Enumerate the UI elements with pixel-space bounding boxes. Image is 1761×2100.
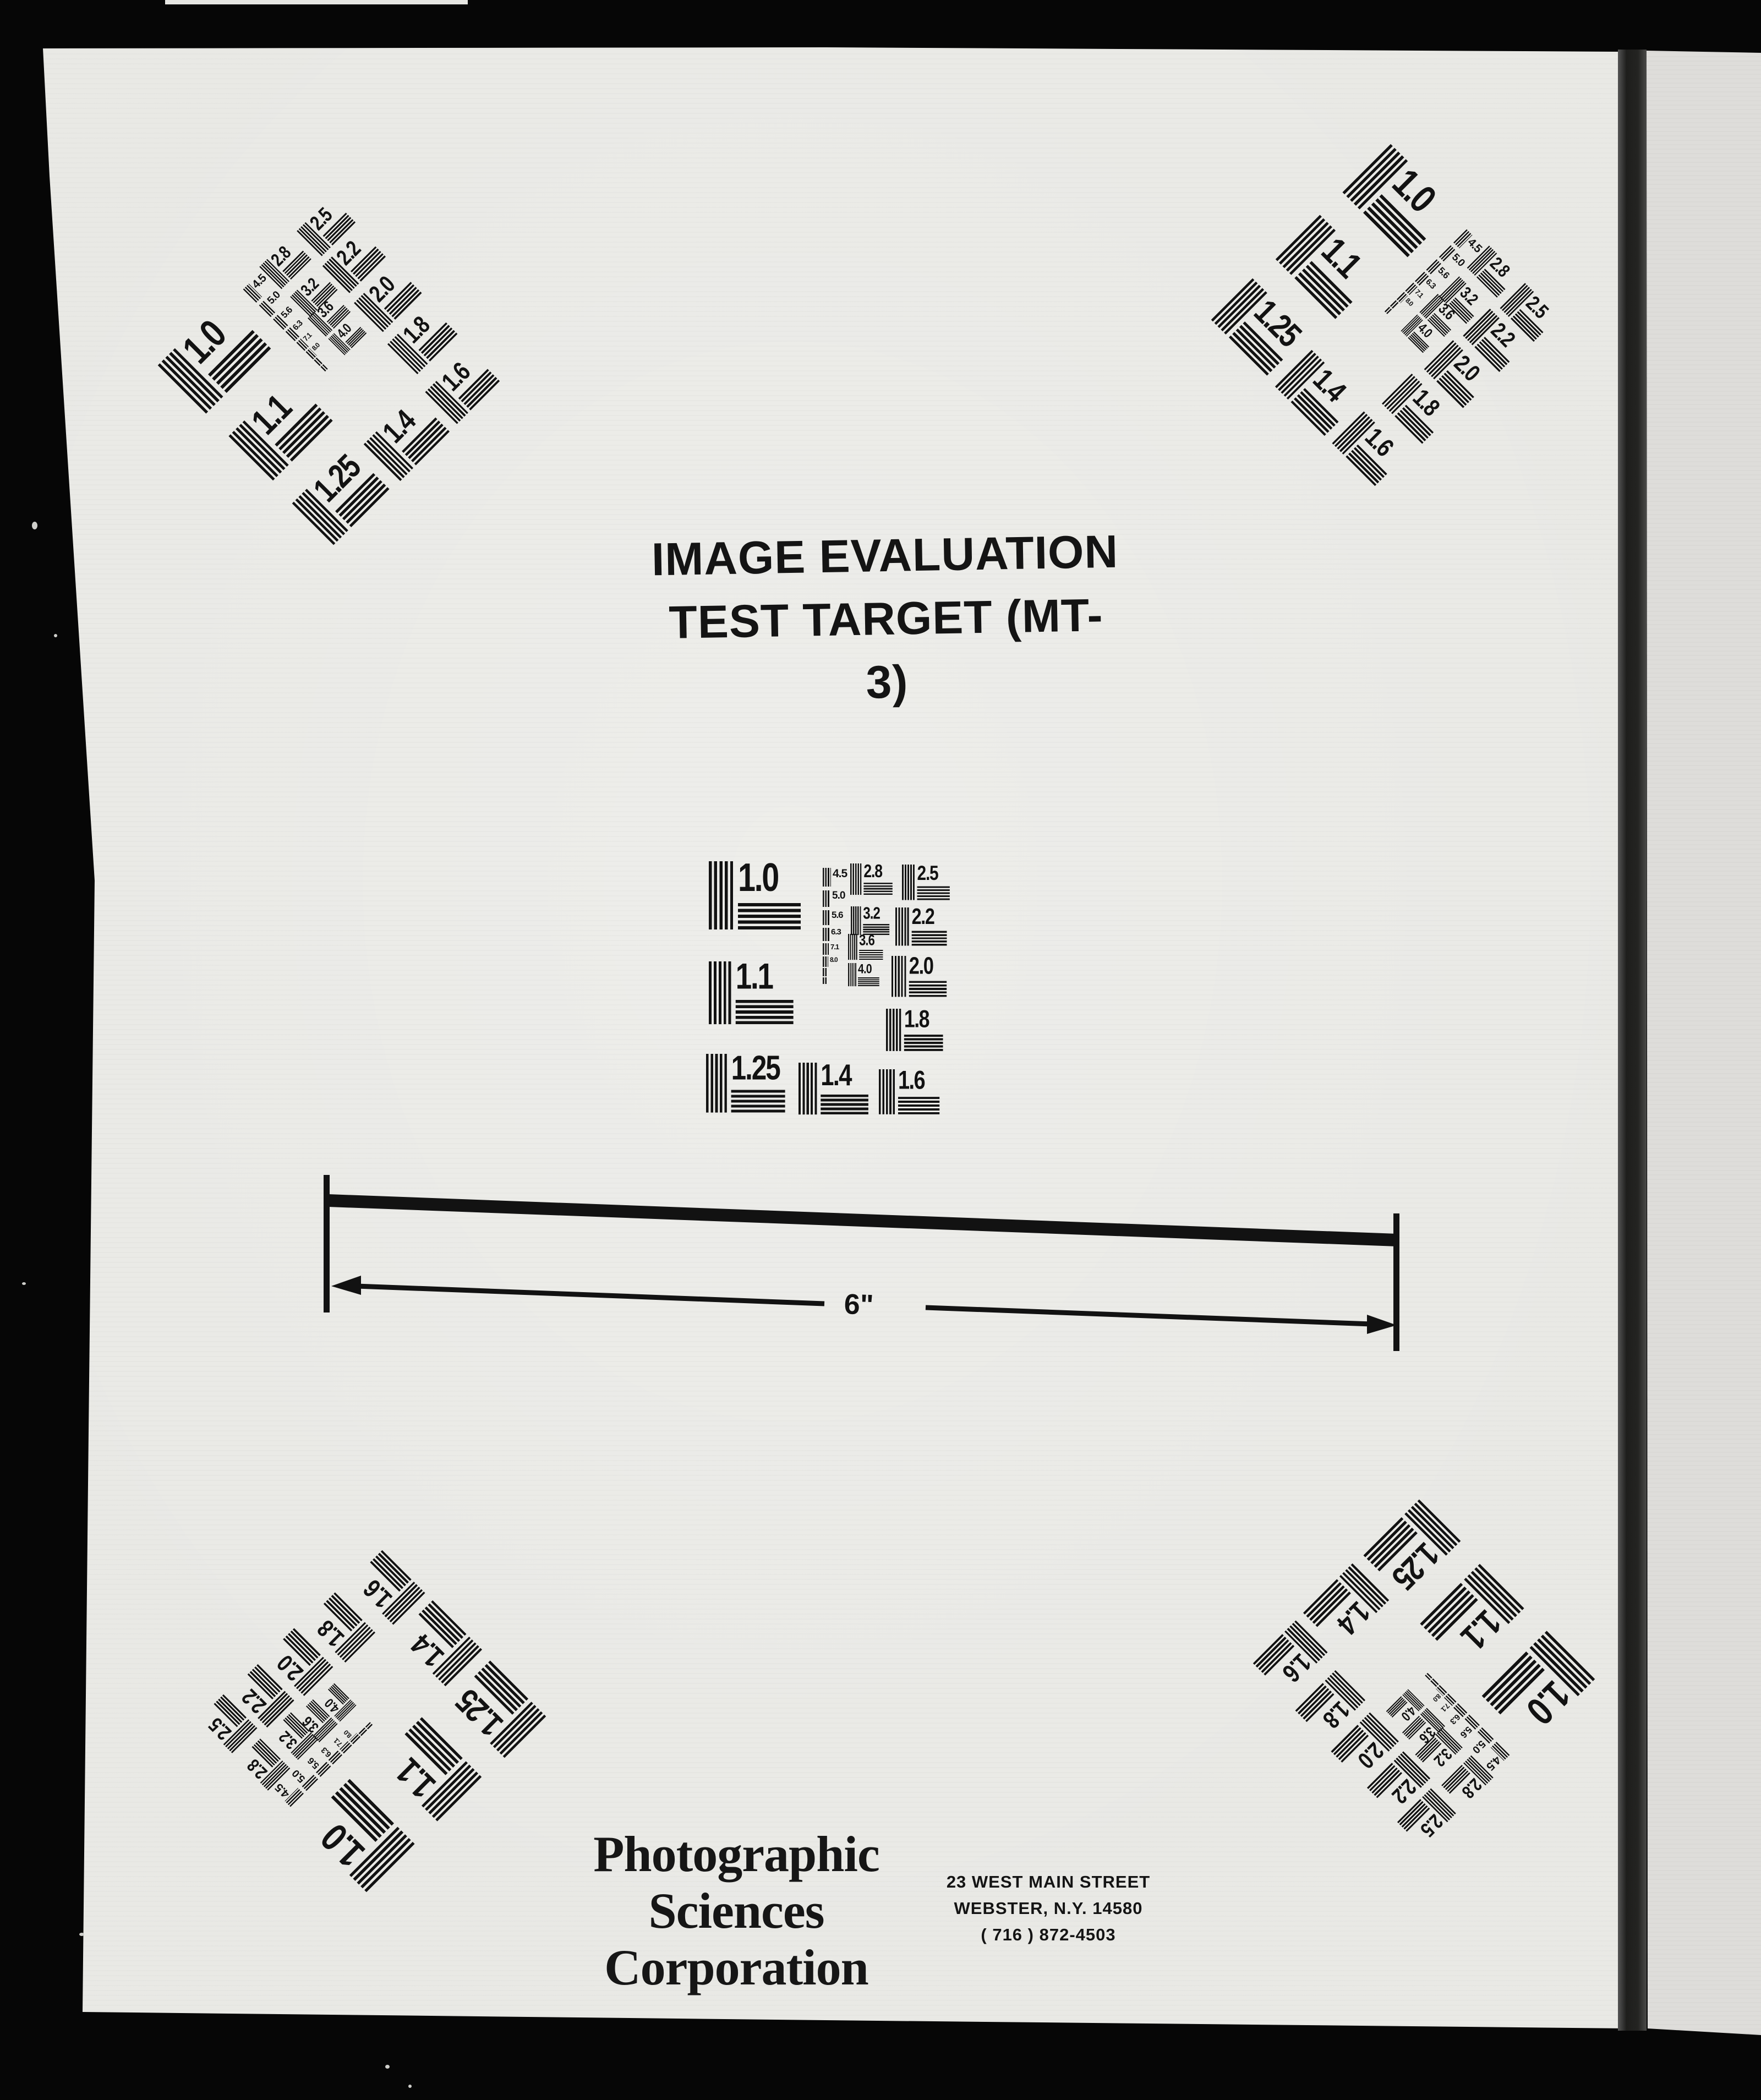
patch-right-column: 1.1 bbox=[736, 961, 794, 1024]
vertical-bars bbox=[709, 861, 733, 929]
resolution-patch-1.6: 1.6 bbox=[879, 1069, 939, 1114]
fine-resolution-item bbox=[823, 968, 847, 976]
patch-right-column: 2.0 bbox=[909, 956, 947, 997]
fine-label: 7.1 bbox=[302, 331, 313, 342]
horizontal-bars bbox=[859, 950, 883, 960]
patch-right-column: 2.8 bbox=[863, 863, 892, 895]
horizontal-bars bbox=[858, 977, 879, 986]
fine-label: 8.0 bbox=[830, 956, 838, 963]
scan-edge-sliver bbox=[165, 0, 468, 4]
org-line-1: Photographic bbox=[566, 1826, 907, 1883]
patch-label: 2.8 bbox=[863, 863, 887, 879]
address-line-2: WEBSTER, N.Y. 14580 bbox=[933, 1895, 1164, 1922]
resolution-patch-1.8: 1.8 bbox=[886, 1009, 943, 1051]
fine-bars bbox=[823, 977, 827, 984]
fine-resolution-item: 4.5 bbox=[823, 868, 847, 887]
dust-speckle bbox=[385, 2065, 390, 2069]
scanned-microfilm-frame: IMAGE EVALUATION TEST TARGET (MT-3) 1.01… bbox=[0, 0, 1761, 2100]
vertical-bars bbox=[886, 1009, 901, 1051]
vertical-bars bbox=[879, 1069, 895, 1114]
vertical-bars bbox=[706, 1054, 727, 1113]
vertical-bars bbox=[902, 865, 915, 900]
vertical-bars bbox=[709, 961, 731, 1024]
patch-right-column: 3.6 bbox=[859, 934, 883, 960]
resolution-patch-3.6: 3.6 bbox=[848, 934, 883, 960]
horizontal-bars bbox=[736, 1000, 794, 1024]
dust-speckle bbox=[79, 1933, 84, 1936]
fine-resolution-item: 7.1 bbox=[823, 943, 847, 955]
horizontal-bars bbox=[909, 981, 947, 997]
ruler-arrow-right-head bbox=[1367, 1315, 1397, 1334]
patch-right-column: 1.6 bbox=[898, 1069, 939, 1114]
dust-speckle bbox=[54, 634, 57, 637]
patch-label: 1.25 bbox=[731, 1054, 780, 1083]
fine-resolution-item bbox=[823, 977, 847, 984]
patch-label: 1.6 bbox=[898, 1069, 931, 1091]
fine-bars bbox=[1430, 1678, 1439, 1687]
fine-label: 7.1 bbox=[830, 943, 839, 950]
patch-right-column: 1.0 bbox=[738, 861, 801, 929]
fine-bars bbox=[1390, 300, 1399, 309]
patch-right-column: 2.5 bbox=[917, 865, 950, 900]
patch-label: 1.0 bbox=[738, 861, 788, 895]
ruler-arrow-right-line bbox=[926, 1308, 1371, 1324]
ruler-thick-bar bbox=[329, 1194, 1398, 1246]
horizontal-bars bbox=[821, 1095, 868, 1114]
horizontal-bars bbox=[917, 887, 950, 900]
fine-bars bbox=[320, 364, 327, 371]
vertical-bars bbox=[850, 863, 861, 895]
resolution-patch-3.2: 3.2 bbox=[851, 906, 889, 935]
patch-label: 2.5 bbox=[917, 865, 943, 882]
fine-label: 5.0 bbox=[832, 890, 845, 901]
patch-right-column: 3.2 bbox=[863, 906, 889, 935]
resolution-patch-4.0: 4.0 bbox=[848, 963, 879, 986]
fine-label: 5.6 bbox=[832, 910, 843, 920]
fine-label: 5.6 bbox=[1436, 265, 1451, 280]
patch-right-column: 1.8 bbox=[904, 1009, 943, 1051]
fine-label: 4.5 bbox=[833, 868, 847, 879]
vertical-bars bbox=[851, 906, 861, 935]
fine-bars bbox=[823, 928, 829, 941]
fine-bars bbox=[823, 968, 827, 976]
org-line-3: Corporation bbox=[566, 1939, 907, 1996]
patch-label: 2.2 bbox=[912, 907, 940, 926]
horizontal-bars bbox=[738, 903, 801, 929]
fine-bars bbox=[365, 1722, 373, 1729]
resolution-patch-1.25: 1.25 bbox=[706, 1054, 792, 1113]
patch-label: 3.6 bbox=[859, 934, 878, 947]
dust-speckle bbox=[22, 1282, 26, 1285]
vertical-bars bbox=[892, 956, 906, 997]
vertical-bars bbox=[848, 963, 856, 986]
fine-bars bbox=[823, 910, 830, 925]
ruler-arrow-left-line bbox=[357, 1286, 824, 1304]
horizontal-bars bbox=[912, 931, 947, 946]
dust-speckle bbox=[32, 522, 37, 529]
ruler-arrow-left-head bbox=[331, 1276, 361, 1295]
fine-bars bbox=[823, 890, 830, 907]
horizontal-bars bbox=[731, 1090, 785, 1112]
vertical-bars bbox=[848, 934, 857, 960]
page-title: IMAGE EVALUATION TEST TARGET (MT-3) bbox=[648, 520, 1124, 718]
patch-right-column: 2.2 bbox=[912, 907, 947, 945]
patch-right-column: 4.0 bbox=[858, 963, 879, 986]
fine-bars bbox=[823, 956, 828, 967]
resolution-patch-2.8: 2.8 bbox=[850, 863, 893, 895]
six-inch-scale-bar: 6" bbox=[308, 1150, 1442, 1387]
fine-bars bbox=[358, 1727, 367, 1736]
resolution-patch-1.4: 1.4 bbox=[799, 1063, 868, 1114]
test-pattern-center: 1.01.11.251.41.61.82.02.22.52.83.23.64.0… bbox=[706, 861, 1036, 1125]
resolution-patch-1.1: 1.1 bbox=[709, 961, 794, 1024]
patch-label: 3.2 bbox=[863, 906, 884, 921]
resolution-patch-2.5: 2.5 bbox=[902, 865, 950, 900]
organization-name: Photographic Sciences Corporation bbox=[566, 1826, 907, 1996]
fine-label: 6.3 bbox=[1424, 277, 1437, 290]
horizontal-bars bbox=[863, 883, 892, 895]
address-block: 23 WEST MAIN STREET WEBSTER, N.Y. 14580 … bbox=[933, 1869, 1164, 1948]
dust-speckle bbox=[408, 2085, 412, 2088]
title-line-1: IMAGE EVALUATION bbox=[648, 520, 1122, 592]
patch-label: 1.4 bbox=[821, 1063, 858, 1089]
title-line-2: TEST TARGET (MT-3) bbox=[649, 583, 1124, 718]
resolution-patch-2.2: 2.2 bbox=[895, 907, 947, 945]
fine-bars bbox=[823, 943, 829, 955]
patch-label: 2.0 bbox=[909, 956, 939, 976]
fine-resolution-item: 8.0 bbox=[823, 956, 847, 967]
vertical-bars bbox=[895, 907, 909, 945]
org-line-2: Sciences bbox=[566, 1883, 907, 1939]
vertical-bars bbox=[799, 1063, 817, 1114]
patch-label: 1.8 bbox=[904, 1009, 936, 1030]
horizontal-bars bbox=[904, 1035, 943, 1051]
patch-right-column: 1.4 bbox=[821, 1063, 868, 1114]
fine-resolution-item: 5.0 bbox=[823, 890, 847, 907]
address-line-1: 23 WEST MAIN STREET bbox=[933, 1869, 1164, 1895]
patch-label: 4.0 bbox=[858, 963, 875, 975]
address-line-3: ( 716 ) 872-4503 bbox=[933, 1922, 1164, 1948]
fine-bars bbox=[314, 357, 322, 366]
horizontal-bars bbox=[898, 1097, 939, 1114]
patch-label: 1.1 bbox=[736, 961, 782, 992]
fine-resolution-item: 6.3 bbox=[823, 928, 847, 941]
fine-bars bbox=[1385, 307, 1392, 314]
page-gap-stripe bbox=[1618, 50, 1647, 2031]
fine-label: 6.3 bbox=[831, 928, 841, 936]
ruler-length-label: 6" bbox=[844, 1288, 874, 1321]
fine-bars bbox=[823, 868, 831, 887]
resolution-patch-1.0: 1.0 bbox=[709, 861, 801, 929]
fine-resolution-item: 5.6 bbox=[823, 910, 847, 925]
patch-right-column: 1.25 bbox=[731, 1054, 792, 1113]
resolution-patch-2.0: 2.0 bbox=[892, 956, 947, 997]
fine-resolution-column: 4.55.05.66.37.18.0 bbox=[823, 868, 847, 985]
